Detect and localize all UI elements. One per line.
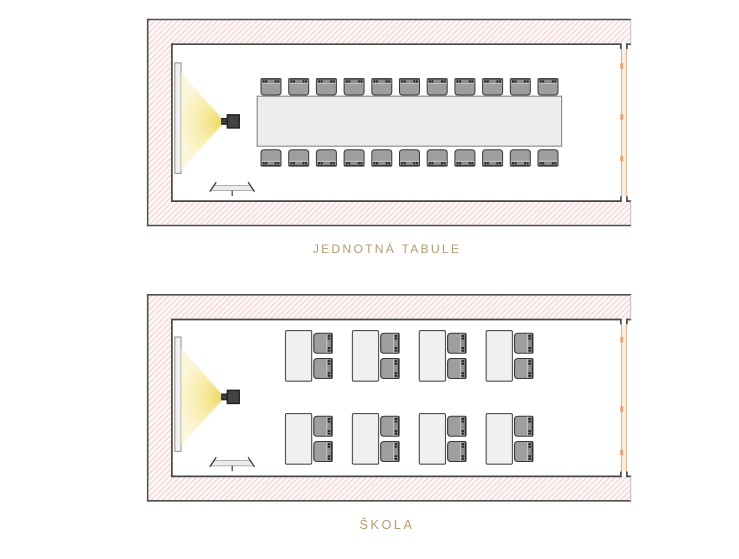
svg-text:JEDNOTNÁ TABULE: JEDNOTNÁ TABULE (313, 241, 461, 256)
svg-text:ŠKOLA: ŠKOLA (360, 517, 415, 532)
